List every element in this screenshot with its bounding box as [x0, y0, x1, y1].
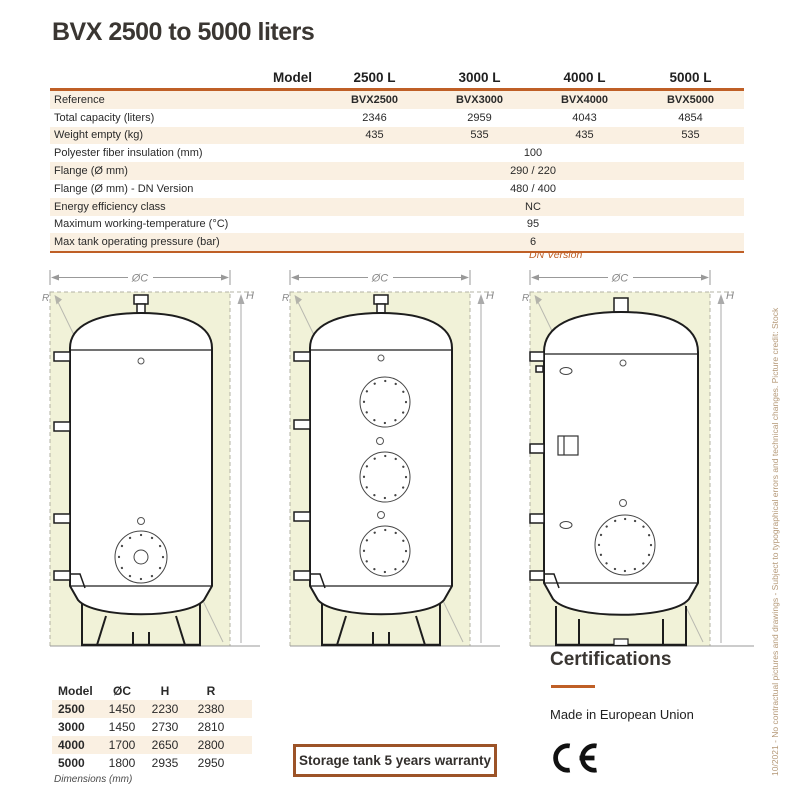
warranty-label: Storage tank 5 years warranty: [299, 753, 491, 768]
spec-row: Flange (Ø mm) - DN Version480 / 400: [50, 180, 744, 198]
dim-label-height: H: [246, 290, 254, 302]
spec-table-header: Model 2500 L 3000 L 4000 L 5000 L: [50, 66, 744, 88]
dims-cell: 1800: [100, 756, 144, 770]
dims-header-radius: R: [186, 684, 236, 698]
dims-cell: 2650: [144, 738, 186, 752]
spec-row-label: Total capacity (liters): [50, 112, 322, 124]
spec-header-model-label: Model: [50, 70, 322, 85]
spec-cell-span: 95: [322, 218, 744, 230]
spec-header-col: 4000 L: [532, 70, 637, 85]
tank-diagram-dn-version: ØC H R: [522, 268, 758, 653]
spec-cell: BVX2500: [322, 94, 427, 106]
dim-label-radius: R: [42, 293, 49, 304]
spec-header-col: 5000 L: [637, 70, 744, 85]
spec-cell: BVX5000: [637, 94, 744, 106]
dims-cell: 2730: [144, 720, 186, 734]
dims-row: 5000180029352950: [52, 754, 252, 772]
spec-row: Polyester fiber insulation (mm)100: [50, 144, 744, 162]
spec-cell: 4043: [532, 112, 637, 124]
spec-cell-span: NC: [322, 201, 744, 213]
dims-cell: 2500: [52, 702, 100, 716]
tank-drawing: [530, 298, 698, 646]
dims-cell: 2230: [144, 702, 186, 716]
tank-diagram-2: ØC H R: [282, 268, 502, 653]
spec-cell-span: 100: [322, 147, 744, 159]
spec-row-label: Maximum working-temperature (°C): [50, 218, 322, 230]
spec-row-label: Polyester fiber insulation (mm): [50, 147, 322, 159]
spec-row-label: Max tank operating pressure (bar): [50, 236, 322, 248]
spec-row-label: Flange (Ø mm): [50, 165, 322, 177]
dims-cell: 2935: [144, 756, 186, 770]
spec-table: Model 2500 L 3000 L 4000 L 5000 L Refere…: [50, 66, 744, 253]
dims-header-diameter: ØC: [100, 684, 144, 698]
spec-cell: BVX3000: [427, 94, 532, 106]
dims-cell: 2810: [186, 720, 236, 734]
certifications-underline: [551, 685, 595, 688]
spec-row: Total capacity (liters)2346295940434854: [50, 109, 744, 127]
spec-row-label: Flange (Ø mm) - DN Version: [50, 183, 322, 195]
dims-cell: 1700: [100, 738, 144, 752]
spec-row: Weight empty (kg)435535435535: [50, 127, 744, 145]
spec-row: Max tank operating pressure (bar)6: [50, 233, 744, 251]
dims-row: 2500145022302380: [52, 700, 252, 718]
spec-cell: 2346: [322, 112, 427, 124]
made-in-text: Made in European Union: [550, 707, 694, 722]
spec-cell: 535: [427, 129, 532, 141]
spec-cell-span: 290 / 220: [322, 165, 744, 177]
warranty-badge: Storage tank 5 years warranty: [293, 744, 497, 777]
spec-row-label: Energy efficiency class: [50, 201, 322, 213]
footer-note: 10/2021 - No contractual pictures and dr…: [770, 308, 780, 776]
spec-cell: 435: [322, 129, 427, 141]
dim-label-height: H: [486, 290, 494, 302]
spec-cell: 535: [637, 129, 744, 141]
dim-label-diameter: ØC: [131, 273, 149, 285]
dims-cell: 3000: [52, 720, 100, 734]
spec-row: Energy efficiency classNC: [50, 198, 744, 216]
dims-cell: 5000: [52, 756, 100, 770]
dim-label-height: H: [726, 290, 734, 302]
spec-cell-span: 480 / 400: [322, 183, 744, 195]
spec-row-label: Reference: [50, 94, 322, 106]
spec-row: Flange (Ø mm)290 / 220: [50, 162, 744, 180]
certifications-heading: Certifications: [550, 649, 671, 671]
spec-table-body: ReferenceBVX2500BVX3000BVX4000BVX5000Tot…: [50, 88, 744, 253]
spec-cell: 2959: [427, 112, 532, 124]
spec-row-label: Weight empty (kg): [50, 129, 322, 141]
dim-label-diameter: ØC: [371, 273, 389, 285]
dimensions-table: Model ØC H R 250014502230238030001450273…: [52, 682, 252, 785]
dim-label-radius: R: [522, 293, 529, 304]
dims-row: 4000170026502800: [52, 736, 252, 754]
spec-row: ReferenceBVX2500BVX3000BVX4000BVX5000: [50, 91, 744, 109]
spec-header-col: 3000 L: [427, 70, 532, 85]
tank-diagram-1: ØC H R: [42, 268, 262, 653]
spec-cell: 4854: [637, 112, 744, 124]
dims-row: 3000145027302810: [52, 718, 252, 736]
dims-cell: 1450: [100, 702, 144, 716]
tank-drawing: [54, 295, 212, 645]
datasheet-page: BVX 2500 to 5000 liters Model 2500 L 300…: [0, 0, 800, 807]
spec-header-col: 2500 L: [322, 70, 427, 85]
dims-header-model: Model: [52, 684, 100, 698]
spec-cell: BVX4000: [532, 94, 637, 106]
ce-mark-icon: [548, 738, 600, 778]
dim-label-diameter: ØC: [611, 273, 629, 285]
spec-cell-span: 6: [322, 236, 744, 248]
dims-cell: 4000: [52, 738, 100, 752]
dn-version-note: DN Version: [529, 249, 582, 261]
dims-cell: 1450: [100, 720, 144, 734]
spec-row: Maximum working-temperature (°C)95: [50, 216, 744, 234]
dims-cell: 2380: [186, 702, 236, 716]
dims-cell: 2800: [186, 738, 236, 752]
dimensions-table-header: Model ØC H R: [52, 682, 252, 700]
page-title: BVX 2500 to 5000 liters: [52, 18, 314, 47]
dims-header-height: H: [144, 684, 186, 698]
tank-drawing: [294, 295, 452, 645]
dims-cell: 2950: [186, 756, 236, 770]
dim-label-radius: R: [282, 293, 289, 304]
dimensions-table-body: 2500145022302380300014502730281040001700…: [52, 700, 252, 772]
dimensions-footnote: Dimensions (mm): [52, 774, 252, 785]
spec-cell: 435: [532, 129, 637, 141]
